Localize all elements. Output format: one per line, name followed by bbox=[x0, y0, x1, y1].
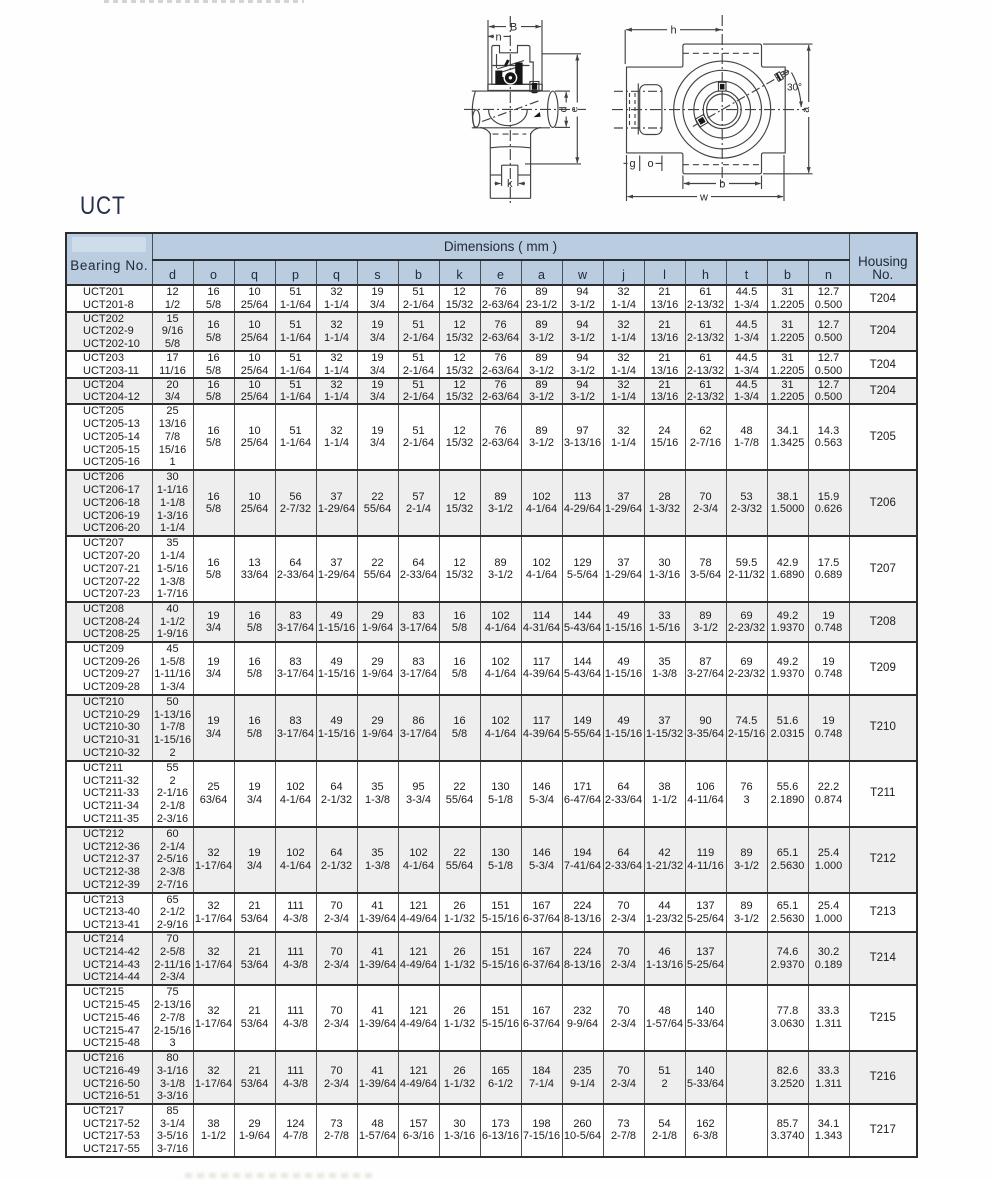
svg-text:e: e bbox=[569, 106, 581, 112]
svg-text:b: b bbox=[719, 178, 725, 190]
svg-text:g: g bbox=[629, 158, 635, 170]
svg-text:w: w bbox=[699, 192, 708, 204]
svg-text:o: o bbox=[647, 158, 653, 170]
svg-text:h: h bbox=[670, 25, 676, 37]
svg-text:a: a bbox=[800, 107, 812, 113]
svg-text:k: k bbox=[507, 178, 513, 190]
svg-text:n: n bbox=[495, 32, 501, 44]
svg-text:B: B bbox=[510, 22, 517, 34]
svg-text:30°: 30° bbox=[787, 83, 802, 94]
